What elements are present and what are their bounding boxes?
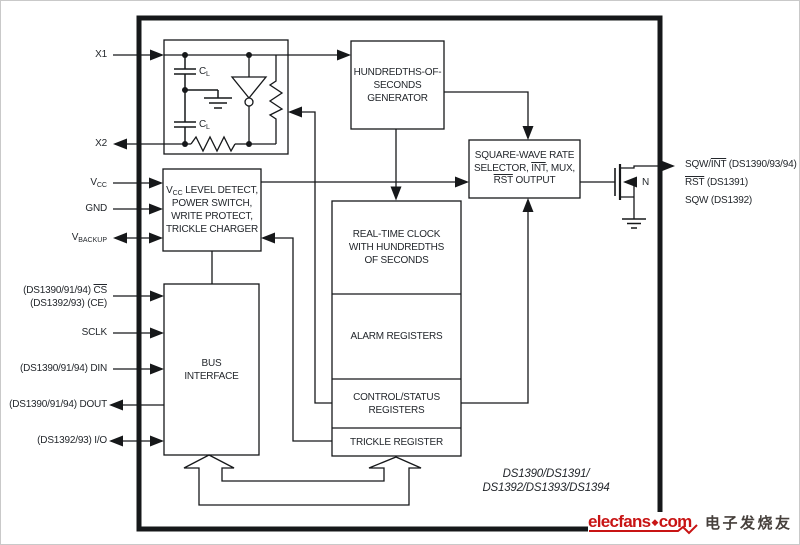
watermark-underline-icon — [586, 524, 711, 538]
selector-block-label: SQUARE-WAVE RATE SELECTOR, INT, MUX, RST… — [469, 140, 580, 198]
rtc-block-label: REAL-TIME CLOCK WITH HUNDREDTHS OF SECON… — [332, 201, 461, 294]
pin-label-x2: X2 — [95, 138, 107, 150]
pin-label-gnd: GND — [85, 203, 107, 215]
control-to-osc-feedback — [290, 112, 332, 403]
pin-label-x1: X1 — [95, 49, 107, 61]
pin-label-dout: (DS1390/91/94) DOUT — [9, 399, 107, 411]
block-diagram: X1 X2 VCC GND VBACKUP (DS1390/91/94) CS … — [0, 0, 800, 545]
alarm-block-label: ALARM REGISTERS — [332, 294, 461, 379]
power-block-label: VCC LEVEL DETECT, POWER SWITCH, WRITE PR… — [163, 169, 261, 251]
cap1-label: CL — [199, 66, 210, 78]
pin-label-cs-ce: (DS1390/91/94) CS (DS1392/93) (CE) — [23, 284, 107, 310]
ground-icon — [622, 219, 646, 228]
output-label-rst: RST (DS1391) — [685, 174, 797, 192]
pin-label-sclk: SCLK — [82, 327, 107, 339]
part-number-label: DS1390/DS1391/ DS1392/DS1393/DS1394 — [446, 468, 646, 495]
generator-to-selector — [444, 92, 528, 138]
mosfet-n-label: N — [642, 177, 649, 189]
trickle-to-power — [263, 238, 332, 441]
pin-label-din: (DS1390/91/94) DIN — [20, 363, 107, 375]
output-label-sqw-int: SQW/INT (DS1390/93/94) — [685, 156, 797, 174]
inverter-bubble-icon — [245, 98, 253, 106]
cap2-label: CL — [199, 119, 210, 131]
pin-label-vcc: VCC — [90, 177, 107, 189]
pin-label-io: (DS1392/93) I/O — [37, 435, 107, 447]
output-label-sqw: SQW (DS1392) — [685, 192, 797, 210]
control-block-label: CONTROL/STATUS REGISTERS — [332, 379, 461, 428]
generator-block-label: HUNDREDTHS-OF- SECONDS GENERATOR — [351, 41, 444, 129]
mosfet-source — [620, 182, 634, 219]
bus-interface-block-label: BUS INTERFACE — [164, 284, 259, 455]
output-pin-labels: SQW/INT (DS1390/93/94) RST (DS1391) SQW … — [685, 156, 797, 210]
trickle-block-label: TRICKLE REGISTER — [332, 428, 461, 456]
data-bus-arrow — [184, 455, 421, 505]
pin-label-vbackup: VBACKUP — [72, 232, 107, 244]
nmos-transistor-icon — [615, 164, 673, 228]
watermark-chinese: 电子发烧友 — [705, 514, 793, 534]
oscillator-box — [164, 40, 288, 154]
mosfet-drain-output — [620, 166, 673, 168]
control-to-selector — [461, 200, 528, 403]
